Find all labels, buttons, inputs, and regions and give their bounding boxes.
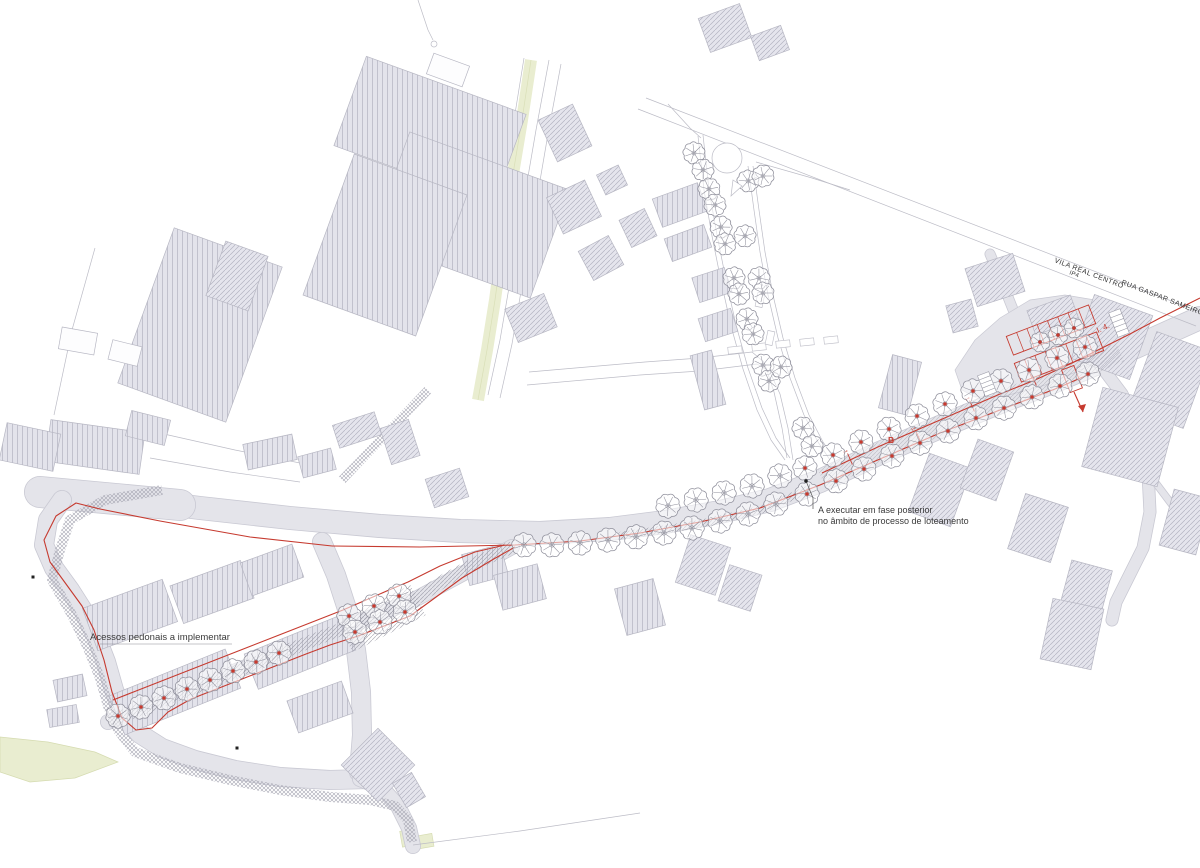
paving-mark — [728, 346, 743, 354]
small-circle-mark — [431, 41, 437, 47]
new-tree-dot — [971, 389, 975, 393]
survey-dot — [32, 576, 35, 579]
new-tree-dot — [1055, 356, 1059, 360]
building — [425, 468, 469, 508]
building — [240, 544, 304, 596]
building — [243, 434, 297, 470]
new-tree-dot — [254, 660, 258, 664]
new-tree-dot — [974, 416, 978, 420]
building — [946, 299, 978, 333]
new-tree-dot — [834, 479, 838, 483]
paving-mark — [765, 330, 775, 345]
new-tree-dot — [378, 620, 382, 624]
new-tree-dot — [946, 429, 950, 433]
new-tree-dot — [353, 630, 357, 634]
new-tree-dot — [999, 379, 1003, 383]
new-tree-dot — [1058, 384, 1062, 388]
new-tree-dot — [403, 610, 407, 614]
building — [170, 560, 254, 623]
site-plan-drawing: 1111 VILA REAL CENTRO IP4 RUA GASPAR SAM… — [0, 0, 1200, 868]
building — [751, 25, 790, 60]
new-tree-dot — [1072, 326, 1076, 330]
new-tree-dot — [1002, 406, 1006, 410]
marker-b: B — [888, 435, 894, 445]
new-tree-dot — [277, 651, 281, 655]
building — [53, 674, 87, 702]
road-label-vila-real-centro: VILA REAL CENTRO — [1053, 257, 1124, 290]
new-tree-dot — [231, 669, 235, 673]
building — [965, 253, 1025, 306]
new-tree-dot — [1038, 340, 1042, 344]
building — [1008, 494, 1069, 563]
red-arrowhead — [1078, 404, 1086, 412]
note-pedestrian-access: Acessos pedonais a implementar — [90, 632, 230, 643]
building — [298, 448, 337, 478]
new-tree-dot — [862, 467, 866, 471]
new-tree-dot — [1027, 368, 1031, 372]
trees-layer — [106, 142, 1101, 729]
note-leader-dot — [804, 479, 808, 483]
building — [538, 104, 592, 162]
building — [47, 705, 80, 728]
new-tree-dot — [943, 402, 947, 406]
building — [960, 439, 1013, 501]
minor-road-line — [527, 364, 793, 460]
new-tree-dot — [185, 687, 189, 691]
new-tree-dot — [1083, 345, 1087, 349]
paving-mark — [776, 340, 791, 348]
minor-road-line — [748, 166, 830, 460]
new-tree-dot — [208, 678, 212, 682]
new-tree-dot — [162, 696, 166, 700]
building — [664, 225, 712, 262]
new-tree-dot — [887, 427, 891, 431]
roundabout — [712, 143, 742, 173]
paving-mark — [824, 336, 839, 344]
new-tree-dot — [116, 714, 120, 718]
new-tree-dot — [915, 414, 919, 418]
paving-mark — [800, 338, 815, 346]
new-tree-dot — [1056, 333, 1060, 337]
building — [698, 308, 738, 341]
note-later-phase-line1: A executar em fase posterior — [818, 505, 933, 515]
building — [718, 565, 762, 612]
minor-road-line — [418, 0, 433, 40]
new-tree-dot — [1086, 372, 1090, 376]
new-tree-dot — [831, 453, 835, 457]
new-tree-dot — [803, 466, 807, 470]
building — [619, 209, 657, 248]
minor-road-line — [668, 104, 701, 138]
green-wedge — [0, 737, 118, 782]
building — [615, 579, 666, 636]
building — [597, 165, 628, 195]
new-tree-dot — [397, 594, 401, 598]
survey-dot — [236, 747, 239, 750]
building — [578, 236, 624, 281]
building — [380, 419, 420, 464]
building — [690, 350, 726, 410]
building — [505, 293, 557, 342]
building — [58, 327, 97, 355]
building — [698, 4, 752, 53]
new-tree-dot — [859, 440, 863, 444]
site-plan-canvas: 1111 VILA REAL CENTRO IP4 RUA GASPAR SAM… — [0, 0, 1200, 868]
building — [1040, 598, 1104, 669]
new-tree-dot — [918, 441, 922, 445]
new-tree-dot — [372, 604, 376, 608]
new-tree-dot — [805, 492, 809, 496]
new-tree-dot — [1030, 395, 1034, 399]
new-tree-dot — [890, 454, 894, 458]
note-later-phase-line2: no âmbito de processo de loteamento — [818, 516, 969, 526]
minor-road-line — [753, 166, 835, 460]
new-tree-dot — [347, 614, 351, 618]
building — [287, 681, 353, 733]
minor-road-line — [413, 813, 640, 845]
new-tree-dot — [139, 705, 143, 709]
